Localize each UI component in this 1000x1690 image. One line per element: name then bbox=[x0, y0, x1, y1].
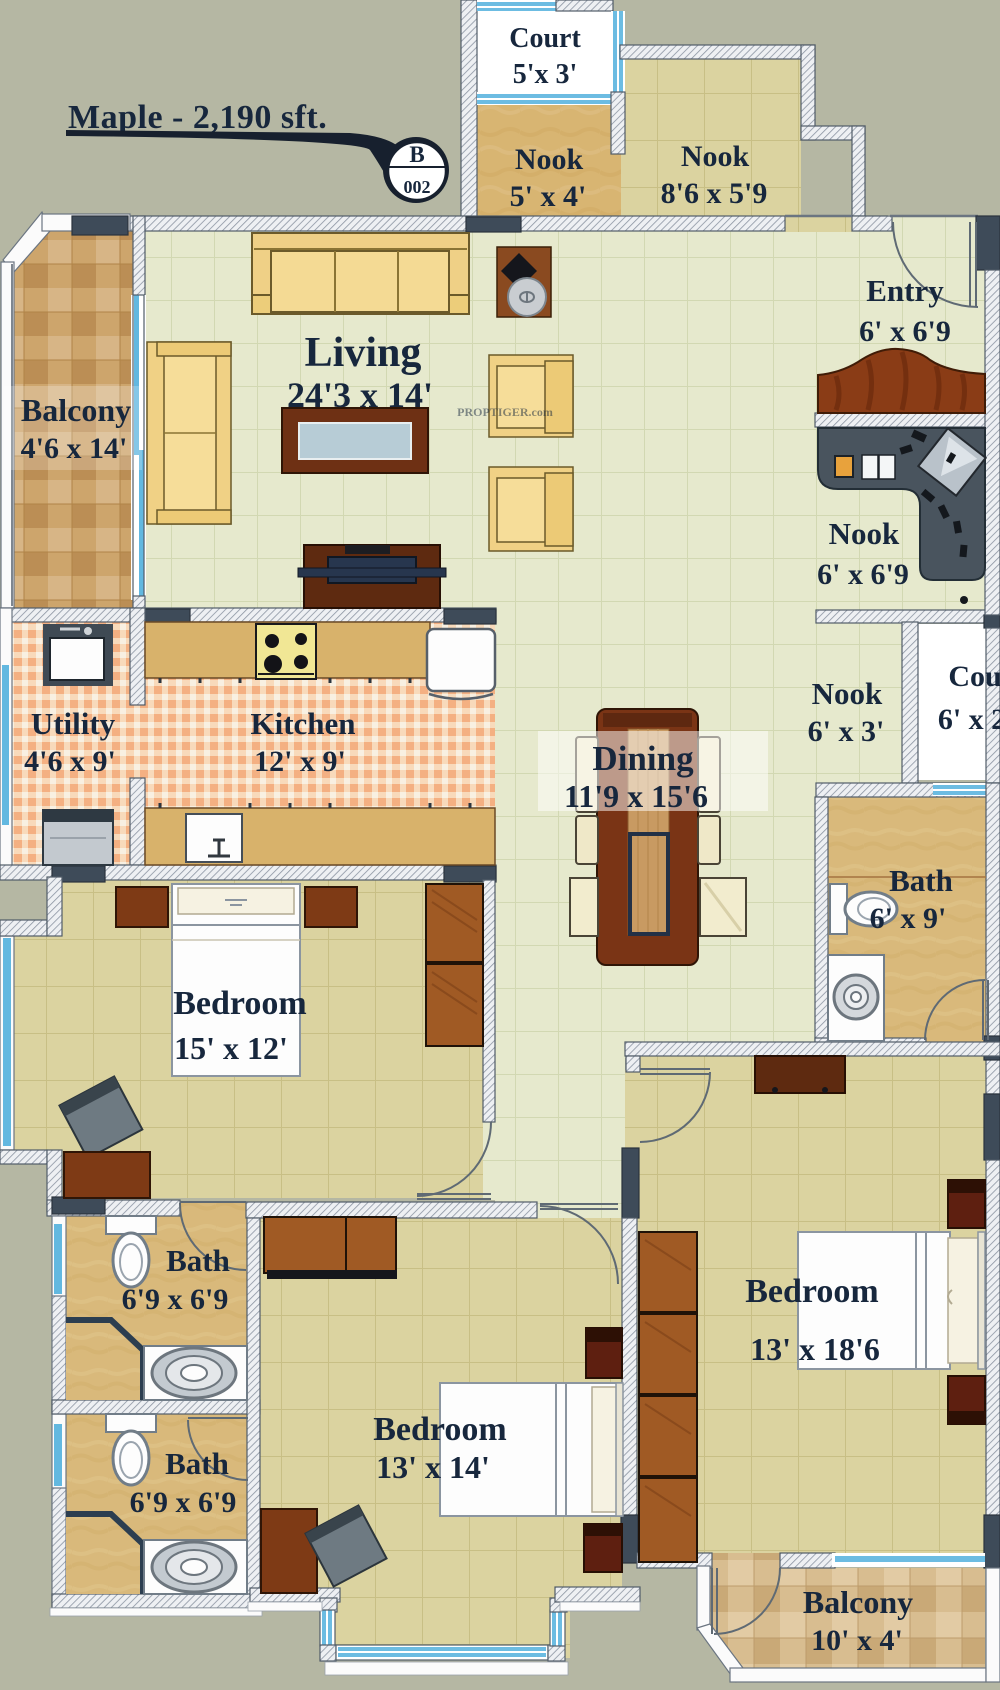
svg-text:Cou: Cou bbox=[948, 660, 1000, 693]
svg-text:Living: Living bbox=[305, 330, 422, 376]
svg-text:B: B bbox=[409, 142, 424, 167]
svg-text:Nook: Nook bbox=[829, 516, 900, 551]
svg-text:002: 002 bbox=[404, 177, 431, 197]
svg-text:Dining: Dining bbox=[592, 739, 694, 778]
svg-text:15' x 12': 15' x 12' bbox=[174, 1030, 288, 1066]
svg-text:6'9 x 6'9: 6'9 x 6'9 bbox=[122, 1283, 229, 1316]
svg-text:5'x 3': 5'x 3' bbox=[513, 59, 578, 90]
svg-text:6' x 6'9: 6' x 6'9 bbox=[859, 315, 951, 348]
svg-text:Nook: Nook bbox=[515, 143, 584, 176]
svg-text:PROPTIGER.com: PROPTIGER.com bbox=[457, 405, 553, 419]
svg-text:Balcony: Balcony bbox=[803, 1584, 913, 1620]
svg-text:Entry: Entry bbox=[866, 273, 944, 308]
svg-text:13' x 14': 13' x 14' bbox=[376, 1449, 490, 1485]
svg-text:4'6 x 9': 4'6 x 9' bbox=[24, 745, 116, 778]
svg-text:Nook: Nook bbox=[681, 140, 750, 173]
svg-text:8'6 x 5'9: 8'6 x 5'9 bbox=[661, 177, 768, 210]
svg-text:Bedroom: Bedroom bbox=[745, 1273, 878, 1310]
svg-text:6' x 3': 6' x 3' bbox=[808, 715, 885, 748]
svg-text:6' x 2: 6' x 2 bbox=[938, 703, 1000, 736]
svg-text:13' x 18'6: 13' x 18'6 bbox=[750, 1331, 880, 1367]
svg-text:24'3 x 14': 24'3 x 14' bbox=[287, 375, 433, 415]
svg-text:5' x 4': 5' x 4' bbox=[510, 180, 587, 213]
svg-text:Balcony: Balcony bbox=[21, 392, 131, 428]
svg-text:4'6 x 14': 4'6 x 14' bbox=[21, 432, 128, 465]
svg-text:Bath: Bath bbox=[165, 1446, 229, 1481]
svg-text:6' x 9': 6' x 9' bbox=[870, 902, 947, 935]
svg-text:Bath: Bath bbox=[166, 1243, 230, 1278]
svg-text:Utility: Utility bbox=[31, 706, 116, 741]
svg-text:10' x 4': 10' x 4' bbox=[811, 1624, 903, 1657]
svg-text:Court: Court bbox=[509, 23, 581, 54]
svg-text:Bath: Bath bbox=[889, 863, 953, 898]
svg-text:12' x 9': 12' x 9' bbox=[254, 745, 346, 778]
svg-text:Bedroom: Bedroom bbox=[173, 985, 306, 1022]
svg-text:11'9 x 15'6: 11'9 x 15'6 bbox=[564, 778, 708, 814]
svg-text:Kitchen: Kitchen bbox=[250, 706, 355, 741]
svg-text:Nook: Nook bbox=[812, 676, 883, 711]
svg-text:6' x 6'9: 6' x 6'9 bbox=[817, 558, 909, 591]
svg-text:6'9 x 6'9: 6'9 x 6'9 bbox=[130, 1486, 237, 1519]
svg-text:Bedroom: Bedroom bbox=[373, 1411, 506, 1448]
